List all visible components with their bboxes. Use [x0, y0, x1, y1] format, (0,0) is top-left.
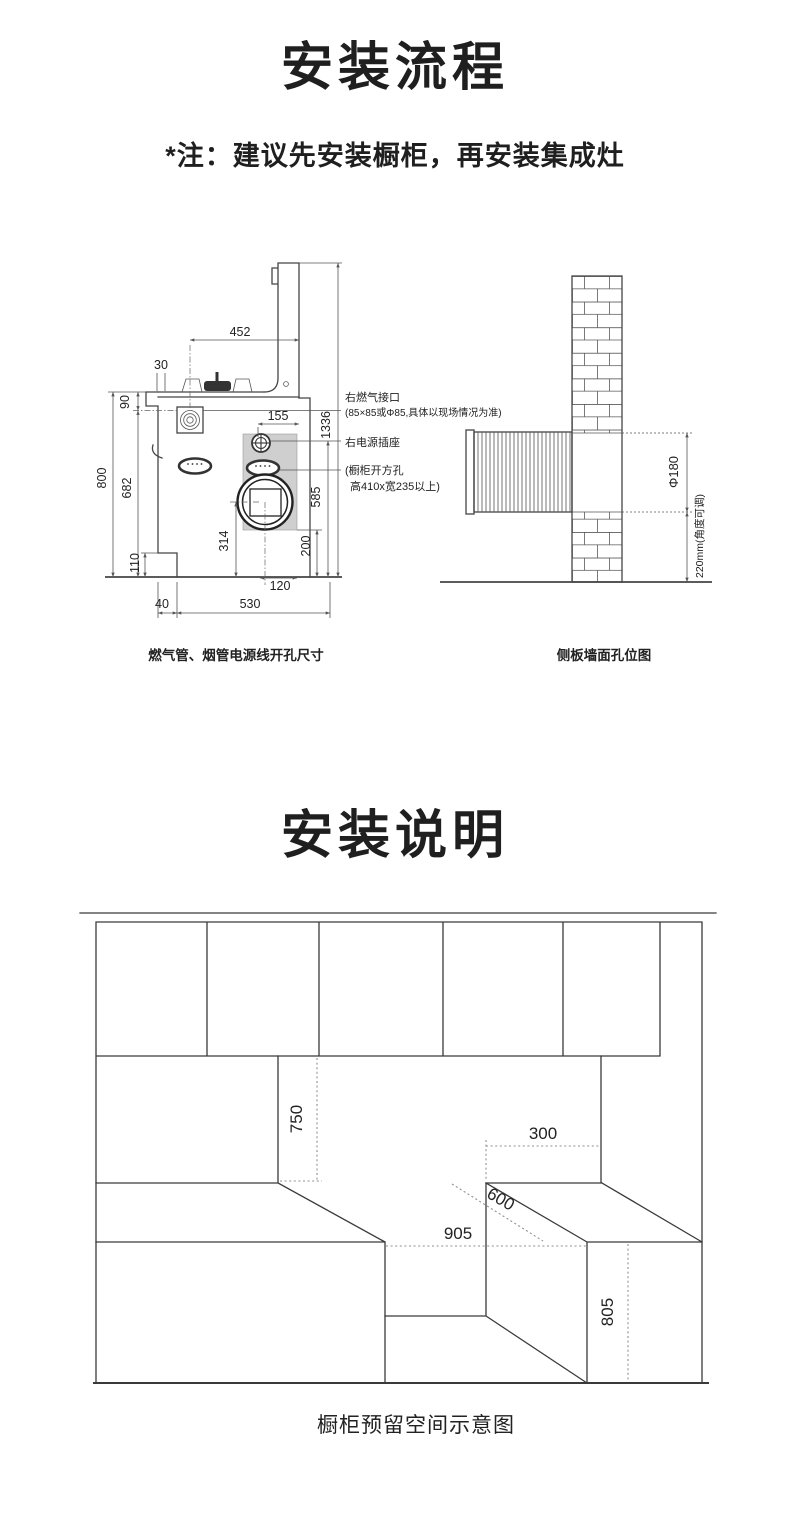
wall-duct-view: Φ180 220mm(角度可调) — [440, 276, 712, 582]
label-gas-port: 右燃气接口 — [345, 390, 400, 404]
page: 安装流程 *注：建议先安装橱柜，再安装集成灶 — [0, 0, 790, 1514]
dim-phi180: Φ180 — [666, 456, 681, 488]
cabinet-cutout — [238, 434, 298, 530]
dim-682: 682 — [120, 478, 134, 499]
section1-title: 安装流程 — [0, 40, 790, 97]
cabinet-space-diagram: 750 300 905 600 805 橱柜预留空间示意图 — [0, 900, 790, 1460]
dim-314: 314 — [217, 531, 231, 552]
cabinet-outline — [80, 913, 716, 1383]
dim-750: 750 — [287, 1105, 306, 1133]
caption-drill-sizes: 燃气管、烟管电源线开孔尺寸 — [148, 647, 324, 663]
dim-120: 120 — [270, 579, 291, 593]
dim-200: 200 — [299, 536, 313, 557]
label-power-socket: 右电源插座 — [345, 435, 400, 449]
dim-452: 452 — [230, 325, 251, 339]
section2-title: 安装说明 — [0, 808, 790, 865]
dim-600: 600 — [484, 1184, 518, 1215]
brick-wall-upper — [572, 276, 622, 433]
dim-585: 585 — [309, 487, 323, 508]
flex-duct — [466, 430, 572, 514]
label-gas-port-detail: (85×85或Φ85,具体以现场情况为准) — [345, 406, 502, 419]
dim-300: 300 — [529, 1124, 557, 1143]
dim-110: 110 — [128, 553, 142, 573]
burner — [182, 372, 252, 392]
caption-wall-holes: 侧板墙面孔位图 — [557, 647, 652, 663]
cabinet-dimensions: 750 300 905 600 805 — [280, 1058, 628, 1381]
dim-905: 905 — [444, 1224, 472, 1243]
dim-155: 155 — [268, 409, 289, 423]
label-cutout-1: (橱柜开方孔 — [345, 463, 404, 477]
install-flow-diagram: 452 30 90 800 682 110 314 200 585 1336 1… — [0, 250, 790, 680]
dim-530: 530 — [240, 597, 261, 611]
stove-dimensions: 452 30 90 800 682 110 314 200 585 1336 1… — [95, 263, 338, 618]
brick-wall-lower — [572, 512, 622, 582]
dim-90: 90 — [118, 395, 132, 409]
dim-40: 40 — [155, 597, 169, 611]
dim-220: 220mm(角度可调) — [693, 494, 706, 578]
caption-cabinet-space: 橱柜预留空间示意图 — [317, 1414, 515, 1437]
vent-slot — [179, 459, 211, 474]
dim-1336: 1336 — [319, 411, 333, 439]
dim-805: 805 — [598, 1298, 617, 1326]
vent-dots — [187, 463, 202, 465]
dim-30: 30 — [154, 358, 168, 372]
gas-connector — [177, 407, 203, 433]
install-note: *注：建议先安装橱柜，再安装集成灶 — [0, 134, 790, 173]
label-cutout-2: 高410x宽235以上) — [350, 479, 440, 493]
dim-800: 800 — [95, 468, 109, 489]
